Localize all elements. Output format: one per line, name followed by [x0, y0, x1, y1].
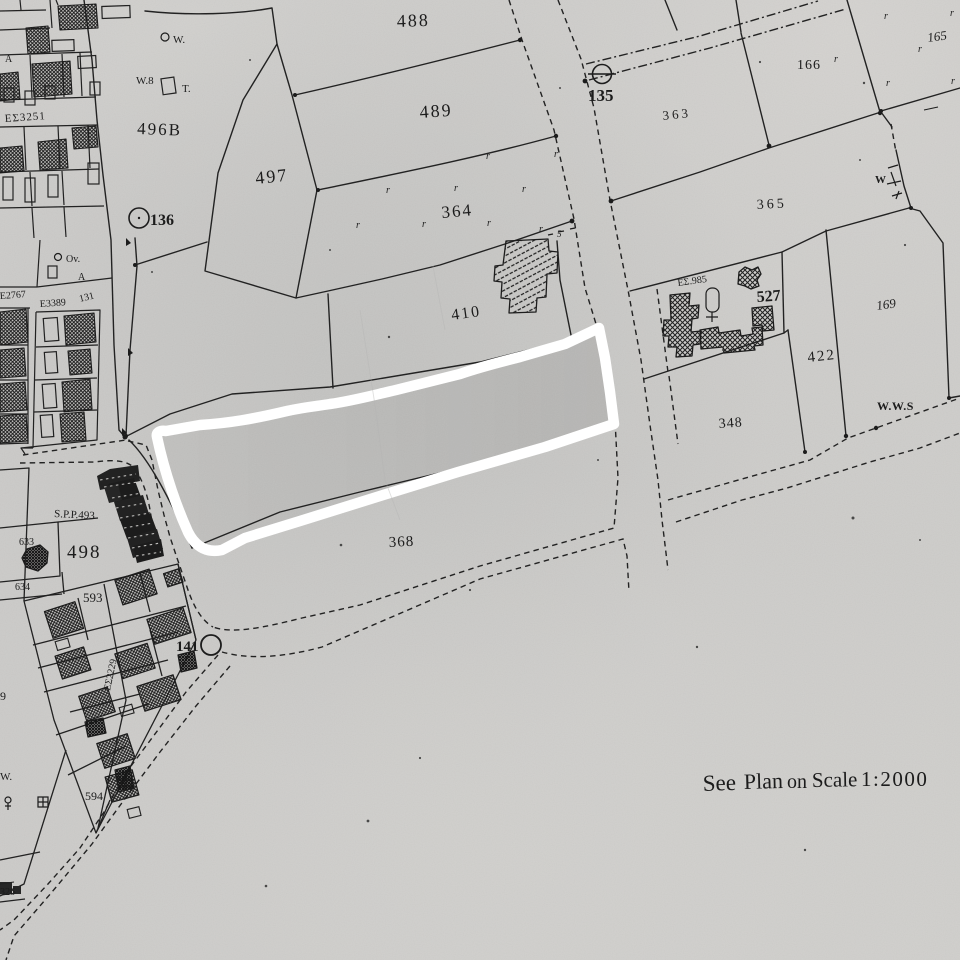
svg-text:r: r [422, 219, 426, 230]
svg-text:166: 166 [797, 58, 821, 73]
svg-text:r: r [884, 11, 888, 22]
svg-text:5: 5 [557, 229, 562, 239]
svg-text:135: 135 [588, 86, 614, 105]
svg-text:W: W [875, 174, 886, 186]
svg-text:141: 141 [176, 639, 199, 655]
svg-text:368: 368 [388, 534, 414, 551]
svg-text:Ov.: Ov. [66, 254, 80, 265]
svg-text:W.: W. [0, 771, 12, 783]
svg-text:165: 165 [926, 27, 948, 45]
svg-text:W.: W. [173, 34, 185, 46]
svg-text:W.8: W.8 [136, 75, 154, 87]
svg-text:r: r [522, 184, 526, 195]
svg-text:A: A [78, 272, 86, 283]
svg-text:348: 348 [718, 415, 743, 432]
svg-text:r: r [487, 218, 491, 229]
svg-text:593: 593 [83, 590, 103, 605]
svg-text:634: 634 [15, 582, 30, 593]
svg-text:363: 363 [662, 105, 692, 123]
svg-text:r: r [486, 151, 490, 162]
svg-text:422: 422 [807, 347, 837, 366]
svg-text:r: r [950, 8, 954, 19]
svg-text:1:2000: 1:2000 [861, 767, 928, 791]
svg-text:r: r [539, 224, 543, 235]
svg-text:Ε2767: Ε2767 [0, 289, 26, 302]
svg-text:364: 364 [441, 200, 474, 222]
svg-text:Plan: Plan [743, 768, 783, 794]
svg-text:136: 136 [150, 212, 174, 229]
svg-text:9: 9 [0, 689, 6, 703]
svg-text:488: 488 [396, 10, 430, 31]
svg-text:Scale: Scale [812, 767, 858, 792]
svg-text:527: 527 [756, 287, 781, 306]
svg-text:496Β: 496Β [137, 119, 182, 140]
svg-text:r: r [356, 220, 360, 231]
svg-text:326: 326 [0, 887, 15, 898]
svg-text:r: r [386, 185, 390, 196]
svg-text:169: 169 [875, 295, 897, 313]
svg-text:r: r [886, 78, 890, 89]
svg-text:r: r [554, 149, 558, 160]
svg-text:r: r [918, 44, 922, 55]
svg-text:633: 633 [19, 537, 34, 548]
svg-text:T.: T. [182, 83, 191, 95]
svg-text:498: 498 [67, 542, 102, 563]
svg-text:See: See [702, 770, 736, 796]
svg-text:on: on [787, 771, 807, 793]
svg-text:594: 594 [85, 789, 103, 803]
svg-text:A: A [5, 54, 13, 65]
svg-text:r: r [454, 183, 458, 194]
svg-text:Ε3389: Ε3389 [39, 297, 66, 310]
svg-text:365: 365 [756, 196, 787, 213]
svg-text:r: r [834, 54, 838, 65]
svg-text:S.P.P.493: S.P.P.493 [54, 508, 96, 522]
svg-text:497: 497 [254, 165, 289, 188]
svg-text:r: r [951, 76, 955, 87]
svg-text:W.W.S: W.W.S [877, 399, 914, 413]
svg-text:489: 489 [419, 100, 453, 122]
